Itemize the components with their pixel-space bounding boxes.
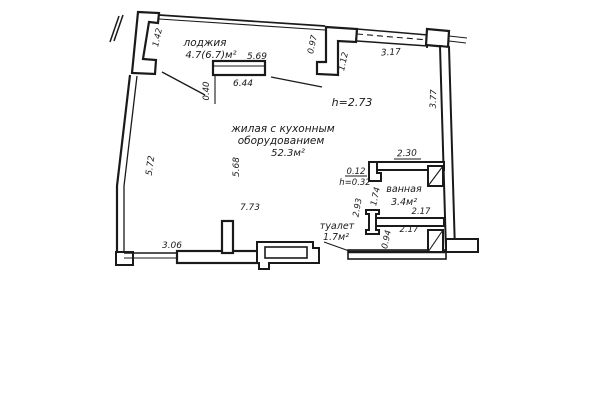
dim-bath-bottom-a: 2.17: [412, 207, 432, 217]
dim-loggia-inner-width: 6.44: [233, 79, 253, 89]
dim-toilet-side: 0.94: [380, 229, 394, 250]
right-wall-foot: [446, 239, 478, 252]
glazing-left-cap: [356, 28, 357, 43]
loggia-label: лоджия: [183, 37, 227, 49]
loggia-area: 4.7(6.7)м²: [185, 50, 236, 61]
entrance-door-frame: [257, 242, 319, 269]
toilet-label: туалет: [320, 221, 355, 232]
dim-loggia-depth: 0.40: [202, 82, 212, 101]
dim-living-depth: 5.68: [232, 157, 242, 177]
living-area: 52.3м²: [271, 148, 305, 159]
entry-wall: [177, 251, 263, 263]
neighbour-wall-stub-a: [449, 36, 467, 38]
dim-bath-top-width: 2.30: [397, 149, 418, 160]
dim-bath-left-outer: 2.93: [351, 197, 364, 217]
loggia-window: [213, 61, 265, 75]
glazing-top-line: [357, 29, 428, 35]
opening-splay-left: [162, 72, 205, 95]
dim-left-wall: 5.72: [145, 155, 158, 177]
dim-bath-niche: 0.12: [347, 167, 366, 177]
dim-bath-left-inner: 1.74: [369, 186, 383, 207]
entry-wall-stub: [222, 221, 233, 253]
living-ceiling-height: h=2.73: [332, 96, 373, 109]
glazing-mid-line: [357, 34, 428, 40]
dim-bath-bottom-b: 2.17: [400, 225, 420, 235]
floor-plan-canvas: лоджия 4.7(6.7)м² жилая с кухонным обору…: [0, 0, 600, 400]
dim-loggia-window-width: 5.69: [247, 52, 267, 62]
dim-top-jog-b: 1.12: [337, 51, 351, 72]
living-label-line2: оборудованием: [238, 135, 325, 147]
dim-top-jog-a: 0.97: [306, 34, 320, 55]
opening-splay-right: [271, 77, 322, 87]
neighbour-wall-stub-b: [449, 41, 466, 43]
top-right-column: [426, 29, 449, 47]
dim-bottom-left: 3.06: [162, 241, 182, 251]
floor-plan: лоджия 4.7(6.7)м² жилая с кухонным обору…: [0, 0, 600, 400]
dim-right-wall: 3.77: [429, 89, 440, 109]
bathroom-label: ванная: [386, 184, 422, 195]
toilet-area: 1.7м²: [323, 232, 349, 243]
dim-living-width: 7.73: [240, 203, 260, 213]
dim-top-right-span: 3.17: [381, 47, 402, 58]
glazing-bottom-line: [357, 41, 428, 46]
dim-bath-niche-height: h=0.32: [339, 178, 370, 188]
toilet-leader-line: [324, 242, 352, 252]
dim-loggia-side: 1.42: [151, 27, 165, 48]
living-label-line1: жилая с кухонным: [230, 123, 334, 135]
